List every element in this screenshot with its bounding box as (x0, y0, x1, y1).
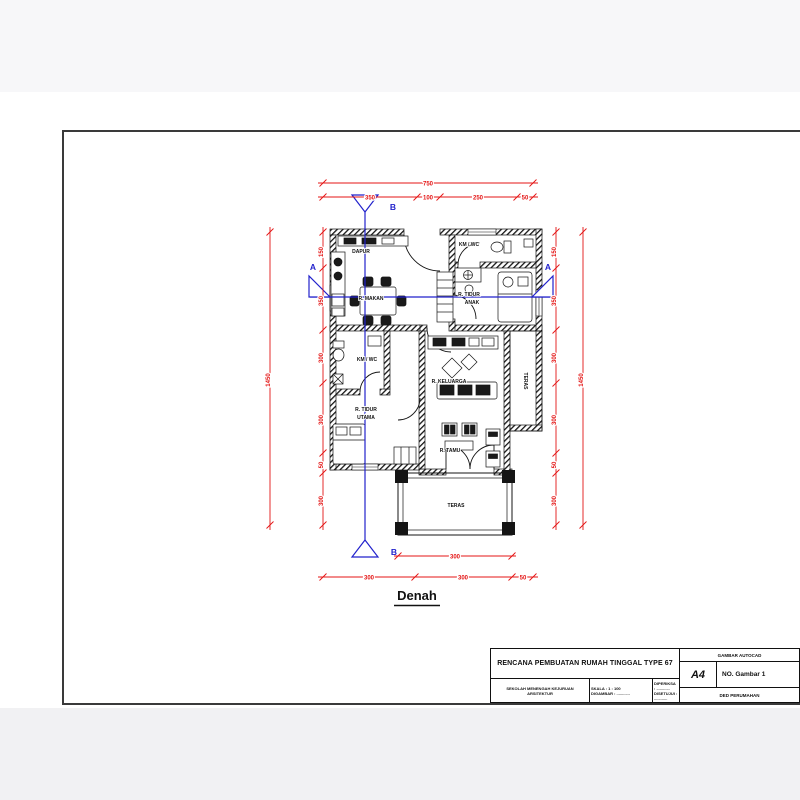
dim-top-seg: 100 (423, 196, 434, 202)
dim-left-seg: 350 (319, 295, 325, 306)
title-block-bottom-row: SEKOLAH MENENGAH KEJURUAN ARSITEKTUR SKA… (491, 679, 679, 702)
title-block-right: GAMBAR AUTOCAD A4 NO. Gambar 1 DED PERUM… (680, 649, 799, 702)
section-letters: B B A A (310, 202, 551, 557)
furniture-living-room (442, 423, 500, 467)
furniture-master-bedroom (333, 424, 416, 464)
checked-line: DIPERIKSA : ............ (654, 681, 678, 691)
dim-top-seg: 50 (522, 196, 529, 202)
room-label-tidur-anak: ANAK (465, 300, 480, 306)
drawn-line: DIGAMBAR : ............ (591, 691, 630, 696)
room-label-tidur-utama: UTAMA (357, 415, 375, 421)
section-lines (309, 195, 553, 557)
section-letter-a-right: A (545, 262, 551, 272)
header-label: GAMBAR AUTOCAD (680, 649, 799, 662)
drawing-caption: Denah (397, 588, 437, 603)
dim-top-total: 750 (423, 182, 434, 188)
dim-right-total: 1450 (579, 373, 585, 387)
room-label-tidur-utama: R. TIDUR (355, 407, 377, 413)
screenshot-canvas: B B A A 750 350 100 (0, 0, 800, 800)
section-letter-b-top: B (390, 202, 396, 212)
dim-right-seg: 150 (552, 246, 558, 257)
dim-left-seg: 300 (319, 352, 325, 363)
dim-right-seg: 350 (552, 295, 558, 306)
furniture-family-room (428, 336, 498, 399)
dim-left-seg: 300 (319, 495, 325, 506)
title-block-left: RENCANA PEMBUATAN RUMAH TINGGAL TYPE 67 … (491, 649, 680, 702)
room-label-kmwc2: KM / WC (357, 357, 378, 363)
dim-bottom-seg: 300 (458, 576, 469, 582)
org-cell: SEKOLAH MENENGAH KEJURUAN ARSITEKTUR (491, 679, 590, 702)
dim-right-seg: 300 (552, 495, 558, 506)
project-title: RENCANA PEMBUATAN RUMAH TINGGAL TYPE 67 (491, 649, 679, 679)
sheet-number: NO. Gambar 1 (717, 662, 799, 687)
dim-left-seg: 50 (319, 461, 325, 468)
dim-bottom-seg: 300 (364, 576, 375, 582)
room-label-tamu: R. TAMU (440, 448, 461, 454)
dim-right-seg: 300 (552, 352, 558, 363)
paper-size: A4 (680, 662, 717, 687)
org-line2: ARSITEKTUR (527, 691, 553, 696)
paper-row: A4 NO. Gambar 1 (680, 662, 799, 688)
room-label-dapur: DAPUR (352, 249, 370, 255)
approved-line: DISETUJUI : ............ (654, 691, 678, 701)
section-letter-a-left: A (310, 262, 316, 272)
room-label-keluarga: R. KELUARGA (432, 379, 467, 385)
room-label-tidur-anak: R. TIDUR (458, 292, 480, 298)
footer-label: DED PERUMAHAN (680, 688, 799, 702)
check-cell: DIPERIKSA : ............ DISETUJUI : ...… (653, 679, 679, 702)
furniture-kid-bedroom (437, 268, 532, 322)
dim-left-seg: 150 (319, 246, 325, 257)
dim-left-seg: 300 (319, 414, 325, 425)
dim-bottom-seg: 50 (520, 576, 527, 582)
room-label-makan: R. MAKAN (359, 296, 384, 302)
room-label-teras-front: TERAS (448, 503, 466, 509)
scale-cell: SKALA : 1 : 100 DIGAMBAR : ............ (590, 679, 653, 702)
dim-top-seg: 350 (365, 196, 376, 202)
room-label-teras-side: TERAS (522, 373, 528, 391)
dim-left-total: 1450 (266, 373, 272, 387)
title-block: RENCANA PEMBUATAN RUMAH TINGGAL TYPE 67 … (490, 648, 800, 703)
dim-top-seg: 250 (473, 196, 484, 202)
furniture-kmwc1 (491, 239, 533, 253)
section-letter-b-bottom: B (391, 547, 397, 557)
dim-right-seg: 50 (552, 461, 558, 468)
dim-right-seg: 300 (552, 414, 558, 425)
dim-bottom-inner: 300 (450, 555, 461, 561)
room-label-kmwc1: KM / WC (459, 242, 480, 248)
